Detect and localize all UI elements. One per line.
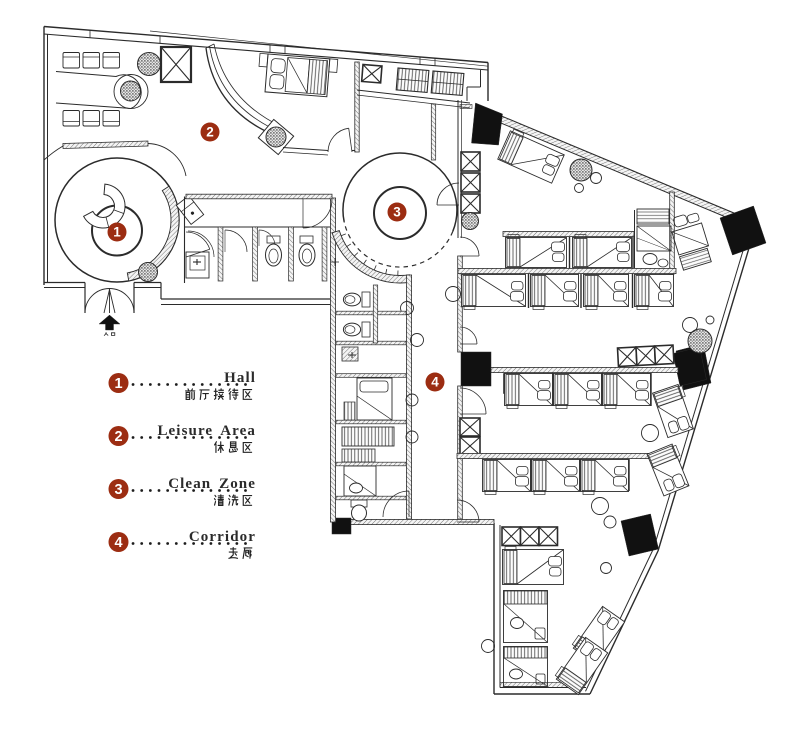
svg-text:Leisure Area: Leisure Area <box>157 423 256 439</box>
svg-text:1: 1 <box>113 225 121 240</box>
svg-text:Clean Zone: Clean Zone <box>168 476 256 492</box>
svg-text:3: 3 <box>393 205 401 220</box>
svg-text:2: 2 <box>206 125 214 140</box>
svg-text:4: 4 <box>114 535 122 551</box>
svg-text:1: 1 <box>114 376 122 392</box>
svg-text:4: 4 <box>431 375 439 390</box>
svg-text:3: 3 <box>114 482 122 498</box>
svg-text:Corridor: Corridor <box>189 529 256 545</box>
svg-text:2: 2 <box>114 429 122 445</box>
svg-text:Hall: Hall <box>224 370 256 386</box>
